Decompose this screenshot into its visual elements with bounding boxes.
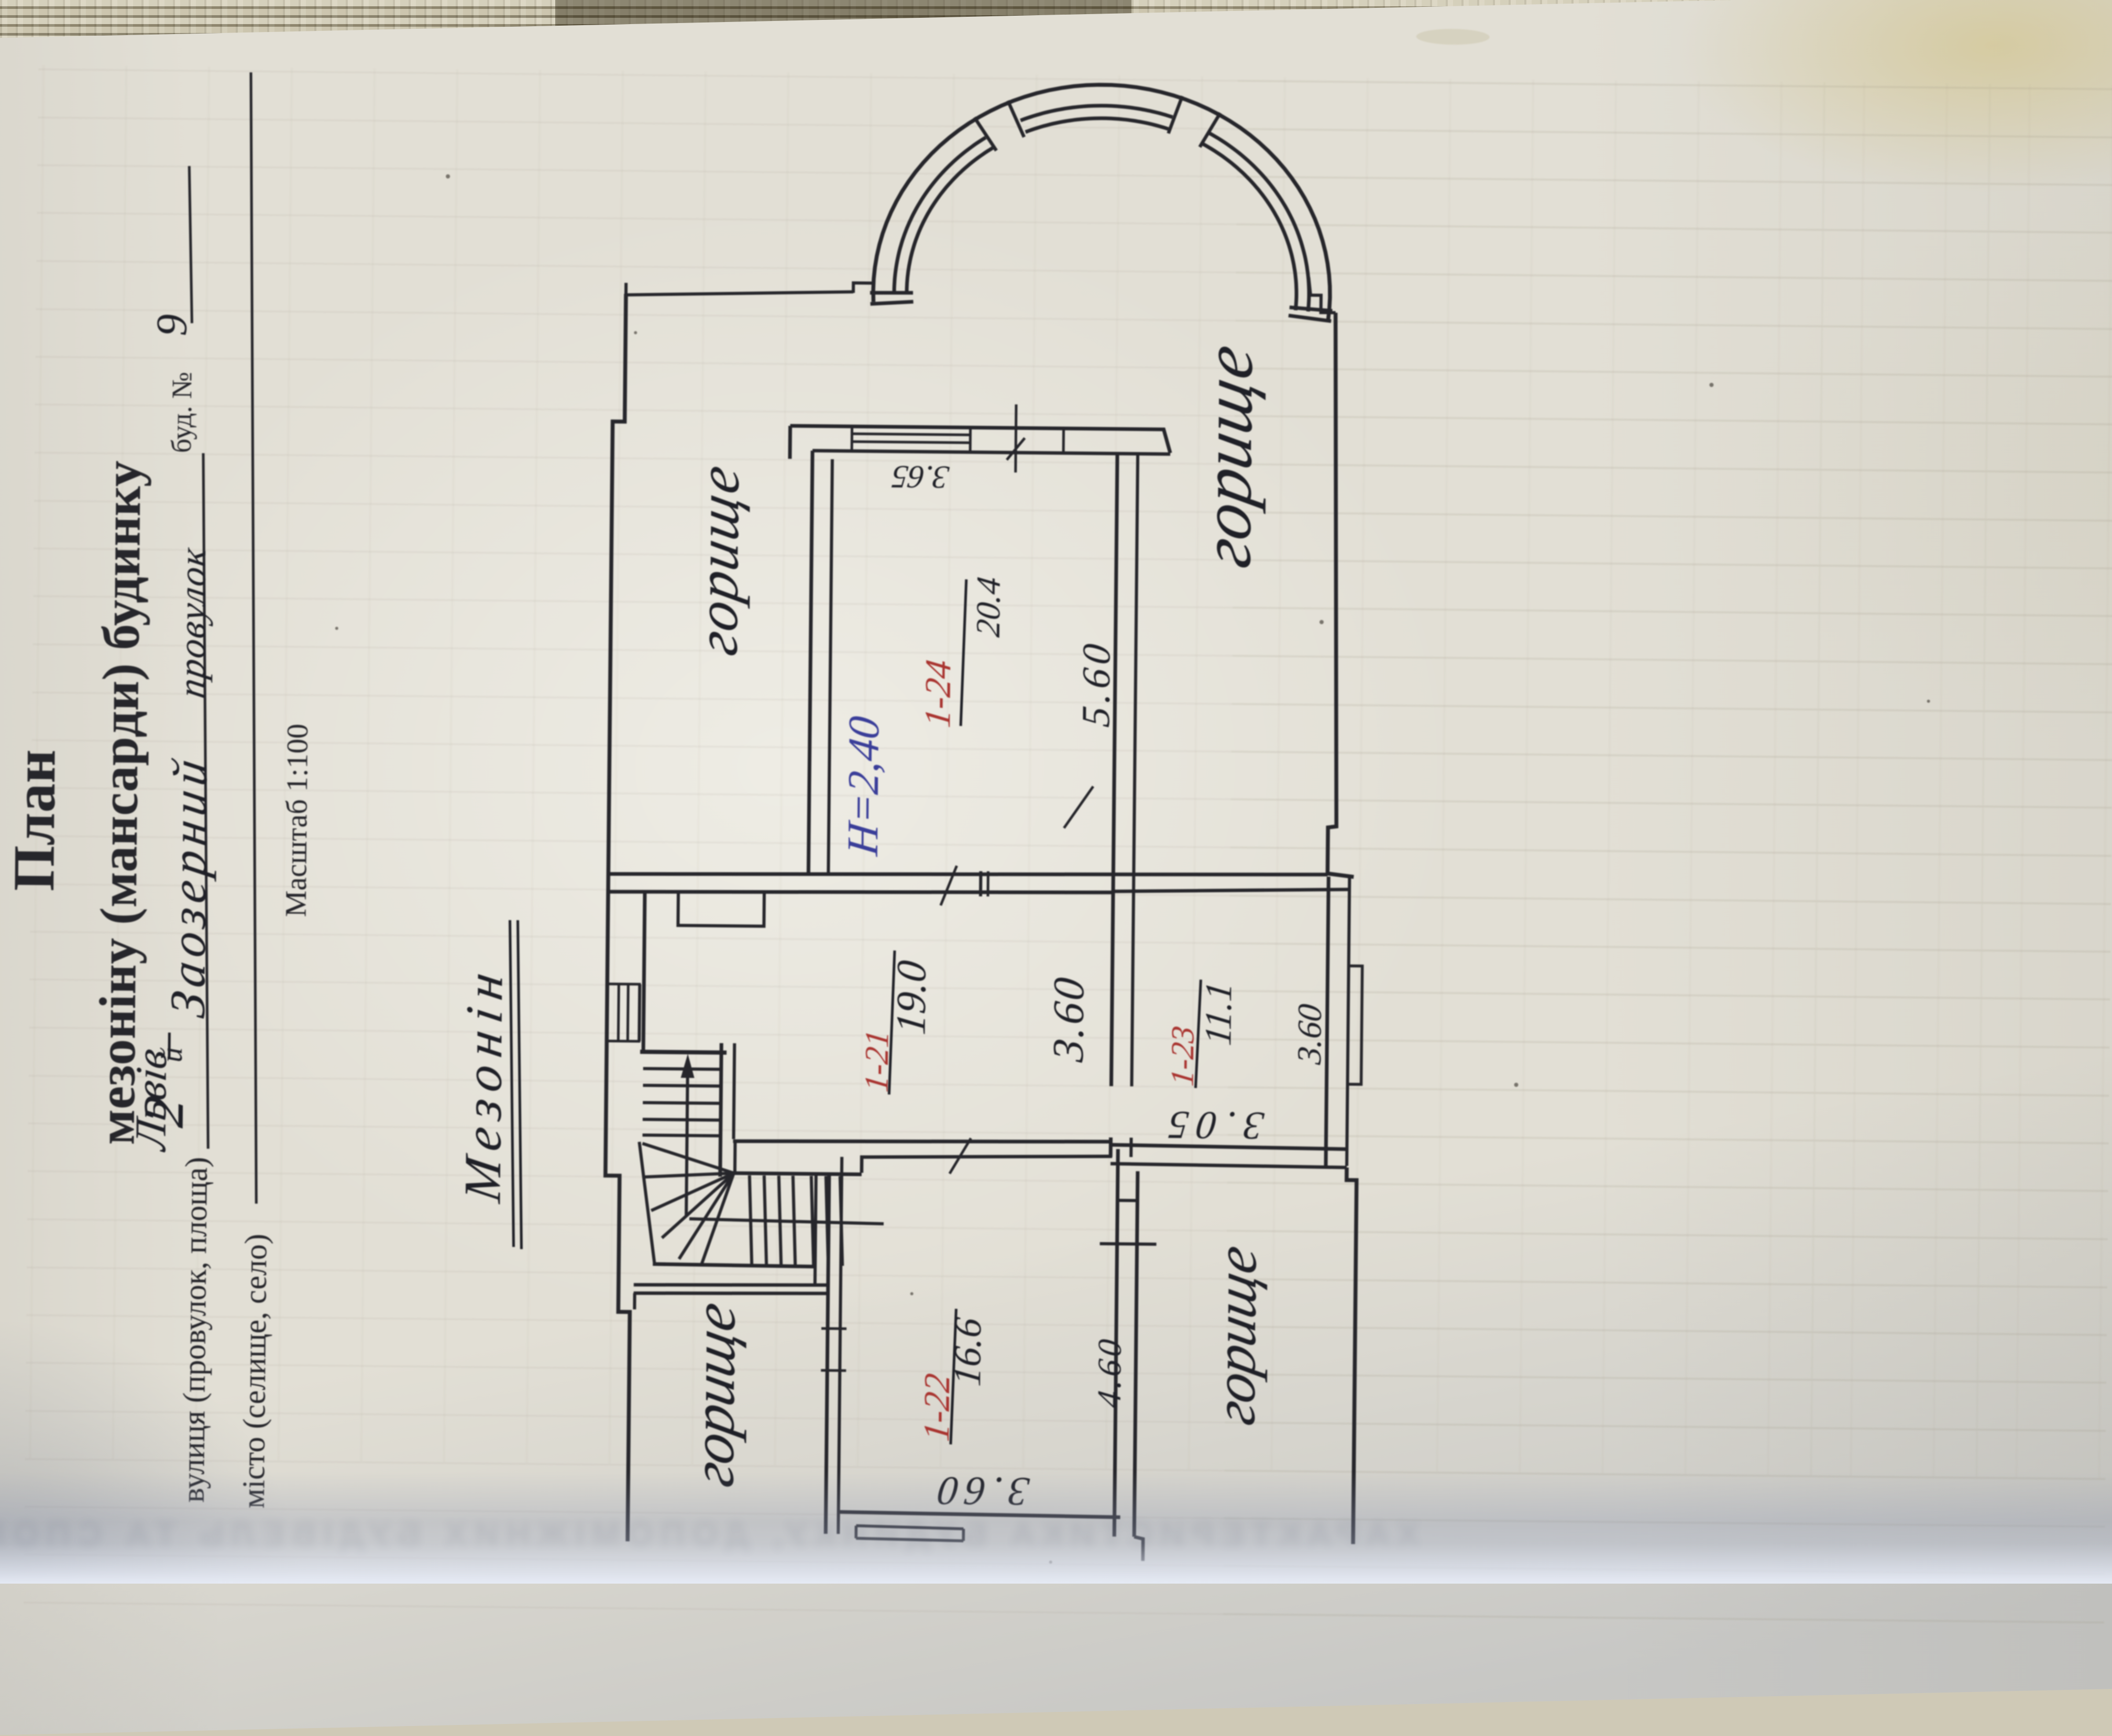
svg-text:3.60: 3.60: [1291, 1002, 1329, 1067]
svg-text:20.4: 20.4: [970, 575, 1008, 639]
svg-text:буд. №: буд. №: [166, 372, 197, 454]
svg-text:9: 9: [147, 314, 196, 336]
svg-text:3.60: 3.60: [1044, 973, 1093, 1065]
svg-text:1-21: 1-21: [858, 1028, 896, 1093]
svg-text:19.0: 19.0: [888, 958, 935, 1037]
svg-text:горище: горище: [1187, 338, 1268, 573]
svg-text:5.60: 5.60: [1074, 637, 1118, 729]
svg-text:3.65: 3.65: [889, 459, 951, 495]
svg-text:3.05: 3.05: [1158, 1103, 1267, 1148]
svg-text:горище: горище: [1202, 1241, 1269, 1430]
svg-text:4.60: 4.60: [1091, 1334, 1128, 1410]
svg-text:Львів: Львів: [127, 1045, 176, 1154]
svg-text:Мезонін: Мезонін: [453, 960, 514, 1207]
svg-text:Н=2,40: Н=2,40: [839, 714, 888, 858]
svg-text:горище: горище: [680, 1298, 748, 1491]
svg-text:місто (селище, село): місто (селище, село): [236, 1234, 273, 1509]
svg-text:11.1: 11.1: [1197, 979, 1239, 1047]
svg-text:Заозерний: Заозерний: [160, 750, 217, 1020]
svg-text:16.6: 16.6: [946, 1315, 989, 1388]
svg-text:вулиця (провулок, площа): вулиця (провулок, площа): [176, 1157, 214, 1503]
svg-text:провулок: провулок: [171, 544, 214, 701]
svg-text:1-23: 1-23: [1165, 1024, 1201, 1088]
svg-text:1-24: 1-24: [917, 658, 959, 729]
svg-text:горище: горище: [685, 459, 751, 660]
svg-text:Масштаб 1:100: Масштаб 1:100: [280, 724, 315, 917]
svg-text:мезоніну (мансарди) будинку: мезоніну (мансарди) будинку: [87, 460, 152, 1145]
svg-text:3.60: 3.60: [929, 1468, 1031, 1514]
svg-text:План: План: [2, 749, 68, 891]
